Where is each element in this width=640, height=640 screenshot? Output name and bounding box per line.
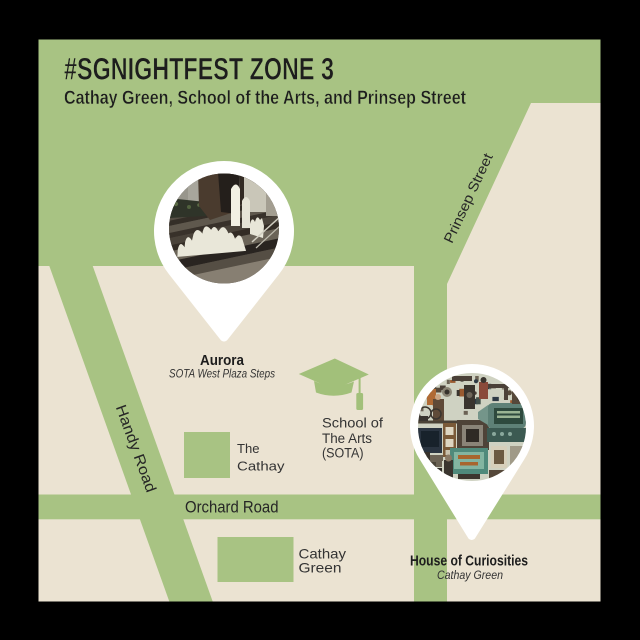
svg-text:Orchard Road: Orchard Road <box>185 498 279 516</box>
svg-text:School of: School of <box>322 416 383 431</box>
svg-text:#SGNIGHTFEST ZONE 3: #SGNIGHTFEST ZONE 3 <box>64 51 334 87</box>
svg-text:SOTA West Plaza Steps: SOTA West Plaza Steps <box>169 369 275 381</box>
svg-text:Cathay: Cathay <box>237 458 285 473</box>
svg-text:The Arts: The Arts <box>322 431 372 446</box>
svg-text:Green: Green <box>299 560 342 576</box>
svg-text:Aurora: Aurora <box>200 353 245 369</box>
svg-text:The: The <box>237 441 260 456</box>
svg-text:(SOTA): (SOTA) <box>322 446 364 461</box>
svg-text:Cathay Green: Cathay Green <box>437 568 503 582</box>
svg-text:Cathay Green, School of the Ar: Cathay Green, School of the Arts, and Pr… <box>64 88 467 109</box>
